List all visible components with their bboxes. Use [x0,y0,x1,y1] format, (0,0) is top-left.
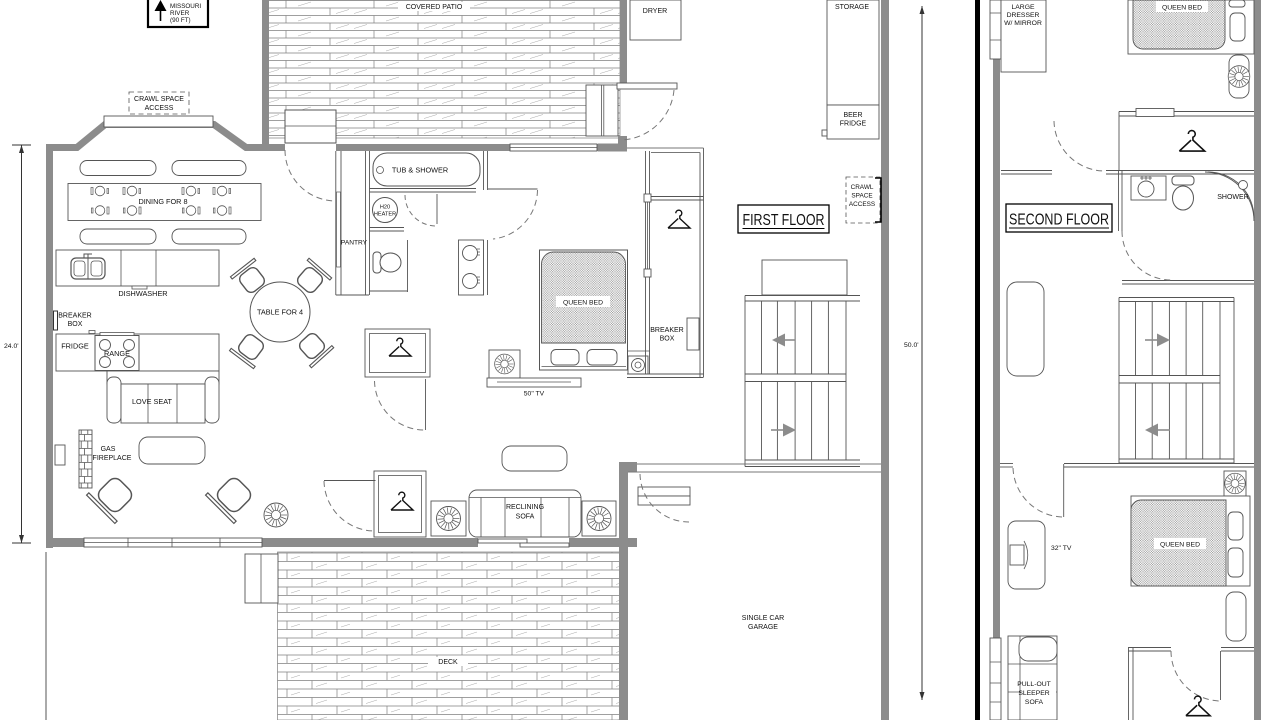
svg-text:CRAWL SPACE: CRAWL SPACE [134,96,184,103]
svg-text:HEATER: HEATER [374,212,396,218]
svg-text:(90 FT): (90 FT) [170,17,191,24]
svg-text:FIRST FLOOR: FIRST FLOOR [743,212,825,229]
svg-text:DINING FOR 8: DINING FOR 8 [138,197,187,206]
svg-text:SINGLE CAR: SINGLE CAR [742,615,784,622]
svg-text:H20: H20 [380,205,390,211]
svg-text:W/ MIRROR: W/ MIRROR [1004,20,1042,27]
svg-text:BEER: BEER [843,112,862,119]
svg-text:GAS: GAS [101,446,116,453]
svg-text:PULL-OUT: PULL-OUT [1017,681,1051,688]
svg-text:BREAKER: BREAKER [58,313,91,320]
svg-text:STORAGE: STORAGE [835,4,869,11]
svg-text:SOFA: SOFA [1025,699,1044,706]
svg-text:DRYER: DRYER [643,8,667,15]
svg-text:SHOWER: SHOWER [1217,194,1249,201]
svg-text:QUEEN BED: QUEEN BED [1162,5,1202,12]
svg-text:SPACE: SPACE [851,193,872,200]
svg-text:SLEEPER: SLEEPER [1018,690,1049,697]
svg-text:FIREPLACE: FIREPLACE [93,455,132,462]
svg-text:ACCESS: ACCESS [849,201,875,208]
svg-text:TABLE FOR 4: TABLE FOR 4 [257,308,303,317]
svg-text:50" TV: 50" TV [524,391,545,398]
svg-text:DECK: DECK [438,659,458,666]
svg-text:TUB & SHOWER: TUB & SHOWER [392,166,448,175]
svg-text:DRESSER: DRESSER [1007,12,1040,19]
svg-text:FRIDGE: FRIDGE [61,342,89,351]
svg-text:SOFA: SOFA [516,514,535,521]
svg-text:QUEEN BED: QUEEN BED [563,300,603,307]
svg-text:LARGE: LARGE [1011,4,1035,11]
svg-text:BOX: BOX [660,336,675,343]
svg-text:COVERED PATIO: COVERED PATIO [406,4,463,11]
svg-text:32" TV: 32" TV [1051,545,1072,552]
svg-text:RIVER: RIVER [170,10,190,17]
svg-text:LOVE SEAT: LOVE SEAT [132,397,173,406]
svg-text:PANTRY: PANTRY [341,240,368,247]
svg-text:FRIDGE: FRIDGE [840,121,867,128]
svg-text:BOX: BOX [68,321,83,328]
svg-text:MISSOURI: MISSOURI [170,3,201,10]
svg-text:RECLINING: RECLINING [506,504,544,511]
svg-text:DISHWASHER: DISHWASHER [118,289,167,298]
svg-text:50.0': 50.0' [904,342,919,349]
svg-text:RANGE: RANGE [104,349,130,358]
svg-text:ACCESS: ACCESS [145,105,174,112]
svg-text:BREAKER: BREAKER [650,327,683,334]
svg-text:CRAWL: CRAWL [851,184,874,191]
svg-text:SECOND FLOOR: SECOND FLOOR [1009,212,1109,229]
svg-text:QUEEN BED: QUEEN BED [1160,542,1200,549]
svg-text:24.0': 24.0' [4,343,19,350]
svg-text:GARAGE: GARAGE [748,624,778,631]
